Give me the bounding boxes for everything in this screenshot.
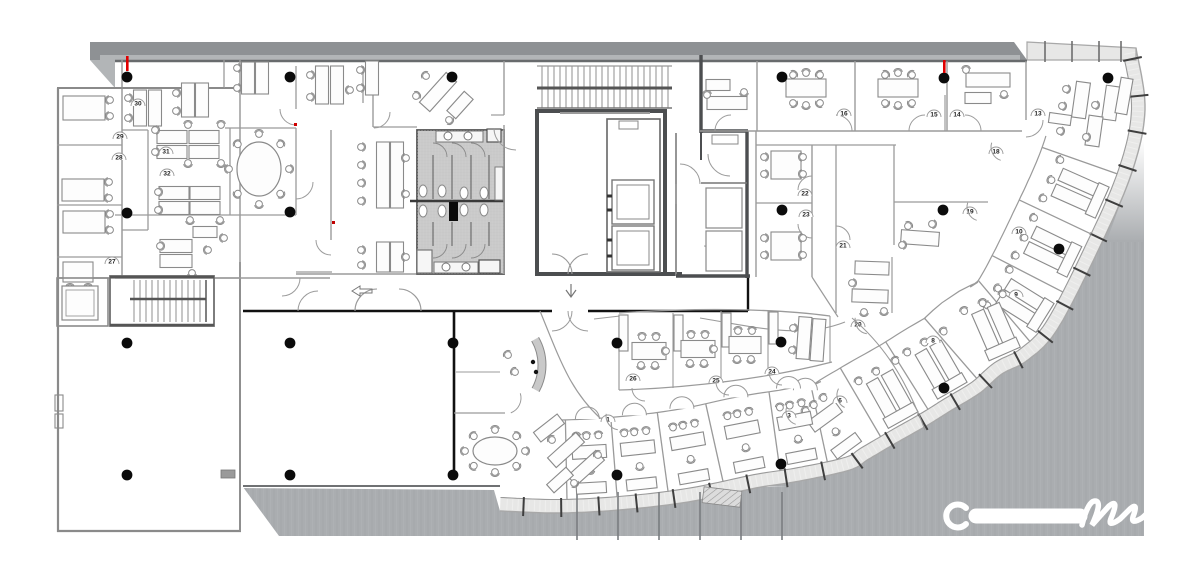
svg-text:29: 29 <box>116 134 124 141</box>
svg-text:10: 10 <box>1015 229 1023 236</box>
svg-text:15: 15 <box>930 112 938 119</box>
svg-text:14: 14 <box>953 112 961 119</box>
svg-text:28: 28 <box>115 155 123 162</box>
svg-text:8: 8 <box>931 338 935 345</box>
svg-text:27: 27 <box>108 259 116 266</box>
svg-text:9: 9 <box>1014 292 1018 299</box>
svg-text:30: 30 <box>134 101 142 108</box>
svg-text:16: 16 <box>840 111 848 118</box>
svg-text:22: 22 <box>801 191 809 198</box>
svg-text:26: 26 <box>629 376 637 383</box>
svg-text:21: 21 <box>839 243 847 250</box>
svg-text:23: 23 <box>802 212 810 219</box>
svg-text:32: 32 <box>163 171 171 178</box>
svg-text:13: 13 <box>1034 111 1042 118</box>
svg-text:31: 31 <box>162 149 170 156</box>
